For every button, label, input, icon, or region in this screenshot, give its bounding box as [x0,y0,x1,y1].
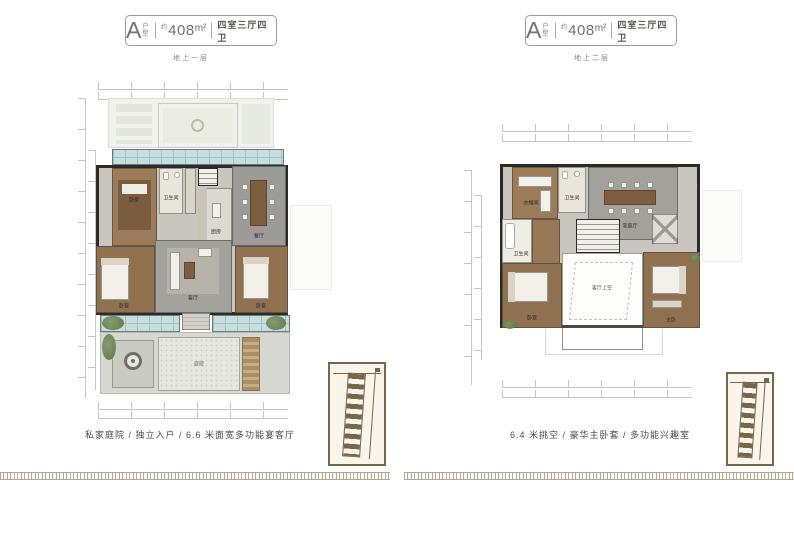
wardrobe [518,176,552,187]
area-unit: m² [195,23,207,34]
court-side-strip [242,104,270,144]
dimension-line [464,170,472,385]
floor-label-right: 地上二层 [574,53,610,63]
dimension-line [98,82,288,90]
room-label: 衣帽间 [523,200,538,207]
court-rosette [191,119,204,132]
bed-headboard [101,258,129,265]
area-unit: m² [595,23,607,34]
dimension-line [474,195,482,360]
adjacent-unit-ghost [290,205,332,290]
stairs [576,219,620,253]
chair [621,182,627,188]
unit-header-left: A 户型 约 408 m² 四室三厅四卫 [125,15,277,46]
planter [266,316,286,330]
chair [242,199,248,205]
caption-left: 私家庭院 / 独立入户 / 6.6 米面宽多功能宴客厅 [85,428,295,441]
chair [608,208,614,214]
unit-suffix: 户型 [542,24,550,38]
approx-label: 约 [561,22,567,31]
unit-letter: A [526,19,541,42]
approx-label: 约 [161,22,167,31]
toilet [163,172,169,180]
skylight-band [112,149,284,165]
site-building-strip [738,382,758,459]
bed-headboard [508,272,515,302]
site-marker [375,368,380,372]
closet [185,168,196,214]
chair [242,184,248,190]
room-label: 卫生间 [564,195,579,202]
bed-pillows [122,184,147,194]
dimension-line [88,150,96,390]
bathtub [505,223,515,249]
ornament-band [0,472,390,480]
sink [174,172,180,178]
header-divider [555,22,556,39]
coffee-table [184,262,195,279]
chair [269,214,275,220]
chair [621,208,627,214]
room-label: 庭院 [194,361,204,368]
dimension-line [502,390,692,398]
room-label: 客厅 [188,295,198,302]
room-cloakroom [512,167,558,219]
room-label: 厨房 [211,229,221,236]
bed-headboard [679,266,686,294]
kitchen-counter [198,188,207,246]
chair [269,199,275,205]
toilet [562,171,568,179]
caption-right: 6.4 米挑空 / 豪华主卧套 / 多功能兴趣室 [510,428,690,441]
chair [269,184,275,190]
desk [652,300,682,308]
room-label: 卧室 [256,303,266,310]
room-spec: 四室三厅四卫 [617,18,676,44]
unit-letter: A [126,19,141,42]
header-divider [155,22,156,39]
room-label: 餐厅 [254,233,264,240]
dining-table [250,180,267,226]
site-road [759,379,766,460]
site-key-map [328,362,386,466]
dimension-line [78,98,86,398]
room-label: 卧室 [527,315,537,322]
planter [102,334,116,360]
sofa [170,252,180,290]
area-value: 408 [568,22,595,39]
dimension-line [98,402,288,410]
unit-header-right: A 户型 约 408 m² 四室三厅四卫 [525,15,677,46]
elevator [652,214,678,244]
planter [690,254,700,262]
dimension-line [502,134,692,142]
deck-steps [242,337,260,391]
chair [647,182,653,188]
floorplan-sheet: A 户型 约 408 m² 四室三厅四卫 地上一层 卧室 卫生间 厨房 餐厅 [0,0,794,536]
suite-corridor [532,219,560,264]
header-divider [611,22,612,39]
site-building-strip [342,372,366,457]
area-value: 408 [168,22,195,39]
porch-steps [182,313,210,330]
void-label: 客厅上空 [592,285,612,292]
dimension-line [502,124,692,132]
site-key-map [726,372,774,466]
room-label: 卫生间 [163,195,178,202]
chair [634,208,640,214]
room-label: 主卧 [666,317,676,324]
family-table [604,190,656,205]
dimension-line [98,411,288,419]
planter [102,316,124,330]
room-label: 卧室 [129,197,139,204]
floor-label-left: 地上一层 [173,53,209,63]
stairs [198,168,218,186]
room-label: 卫生间 [513,251,528,258]
terrace-outline [545,328,663,355]
chair [634,182,640,188]
wardrobe [540,190,551,212]
site-road [369,369,376,459]
fire-pit-center [131,359,135,363]
kitchen-island [212,203,221,218]
unit-suffix: 户型 [142,24,150,38]
chair [608,182,614,188]
adjacent-unit-ghost [702,190,742,262]
dimension-line [502,380,692,388]
bed-headboard [243,257,269,264]
site-marker [764,378,769,382]
planter [504,320,516,329]
armchair [198,248,212,257]
room-label: 卧室 [119,303,129,310]
court-pergola [116,104,152,144]
room-spec: 四室三厅四卫 [217,18,276,44]
header-divider [211,22,212,39]
room-label: 家庭厅 [622,223,637,230]
chair [242,214,248,220]
sink [574,171,580,177]
ornament-band [404,472,794,480]
